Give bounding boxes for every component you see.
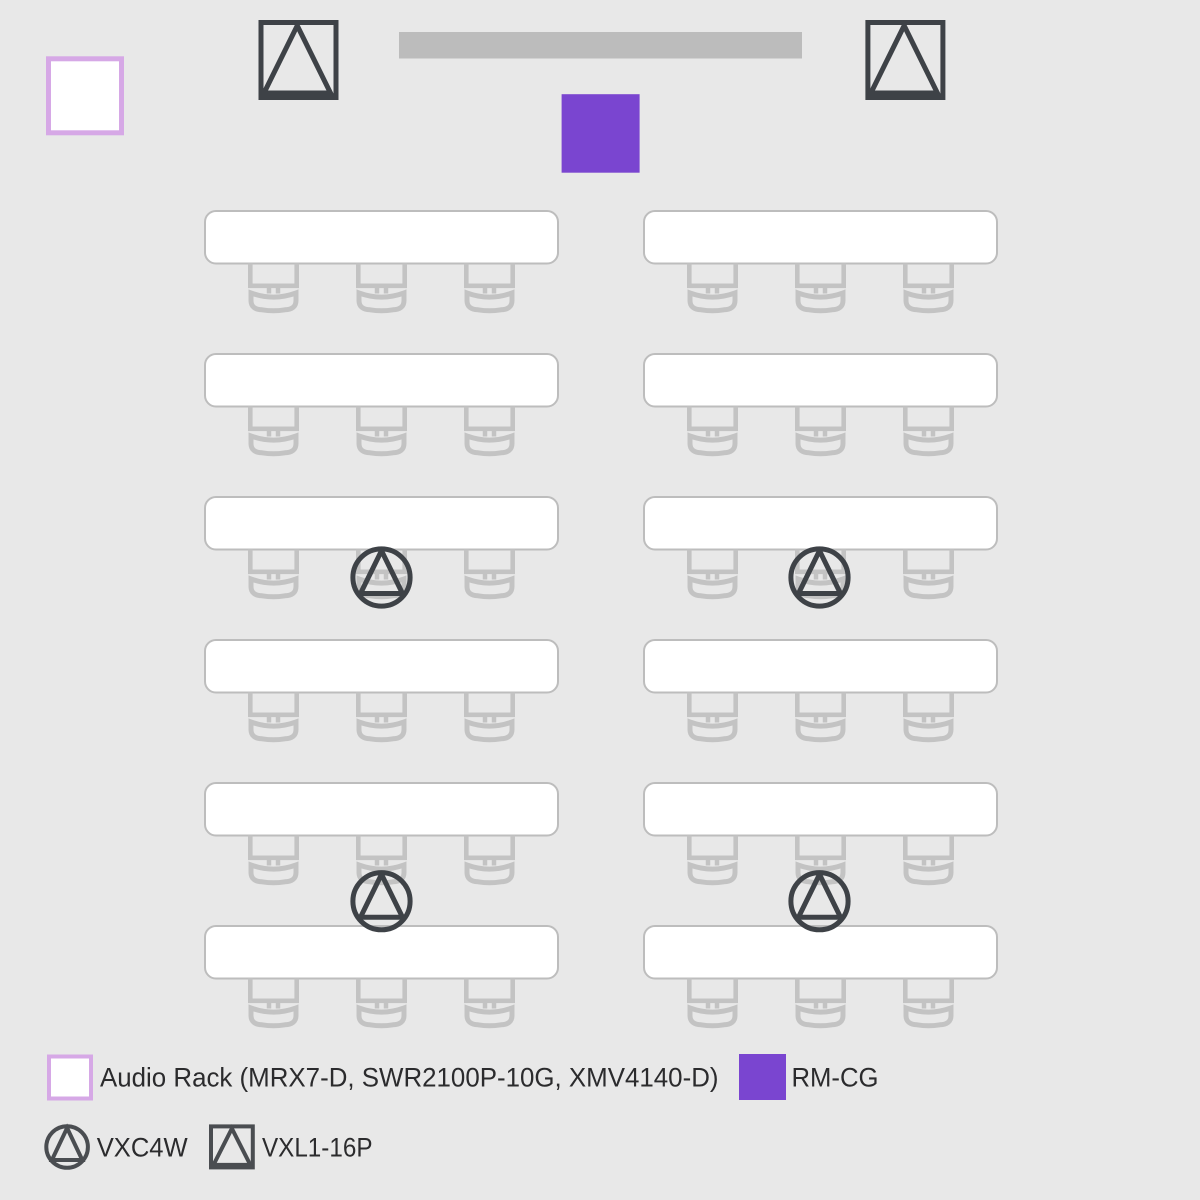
svg-text:VXC4W: VXC4W [97, 1133, 188, 1163]
svg-text:Audio Rack (MRX7-D, SWR2100P-1: Audio Rack (MRX7-D, SWR2100P-10G, XMV414… [100, 1063, 719, 1093]
svg-text:VXL1-16P: VXL1-16P [262, 1133, 373, 1163]
svg-text:RM-CG: RM-CG [792, 1063, 879, 1093]
